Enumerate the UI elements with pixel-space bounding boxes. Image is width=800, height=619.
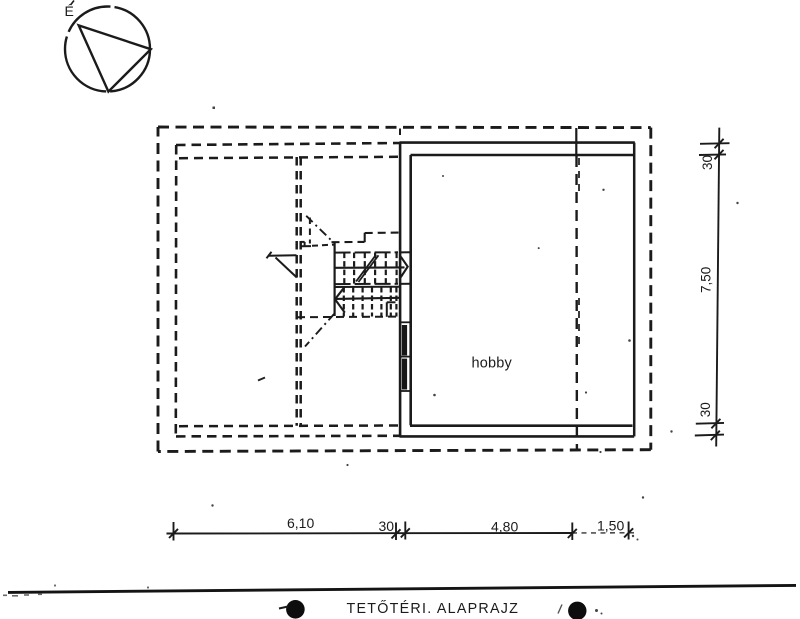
svg-text:30: 30 [700,155,715,170]
svg-text:4,80: 4,80 [491,519,518,535]
svg-text:30: 30 [379,518,395,534]
svg-text:hobby: hobby [472,356,513,372]
svg-text:TETŐTÉRI. ALAPRAJZ: TETŐTÉRI. ALAPRAJZ [347,600,520,617]
svg-text:6,10: 6,10 [287,515,314,531]
svg-text:1,50: 1,50 [597,518,624,534]
svg-text:30: 30 [698,402,713,417]
svg-text:7,50: 7,50 [699,267,714,293]
svg-text:É: É [65,3,74,19]
